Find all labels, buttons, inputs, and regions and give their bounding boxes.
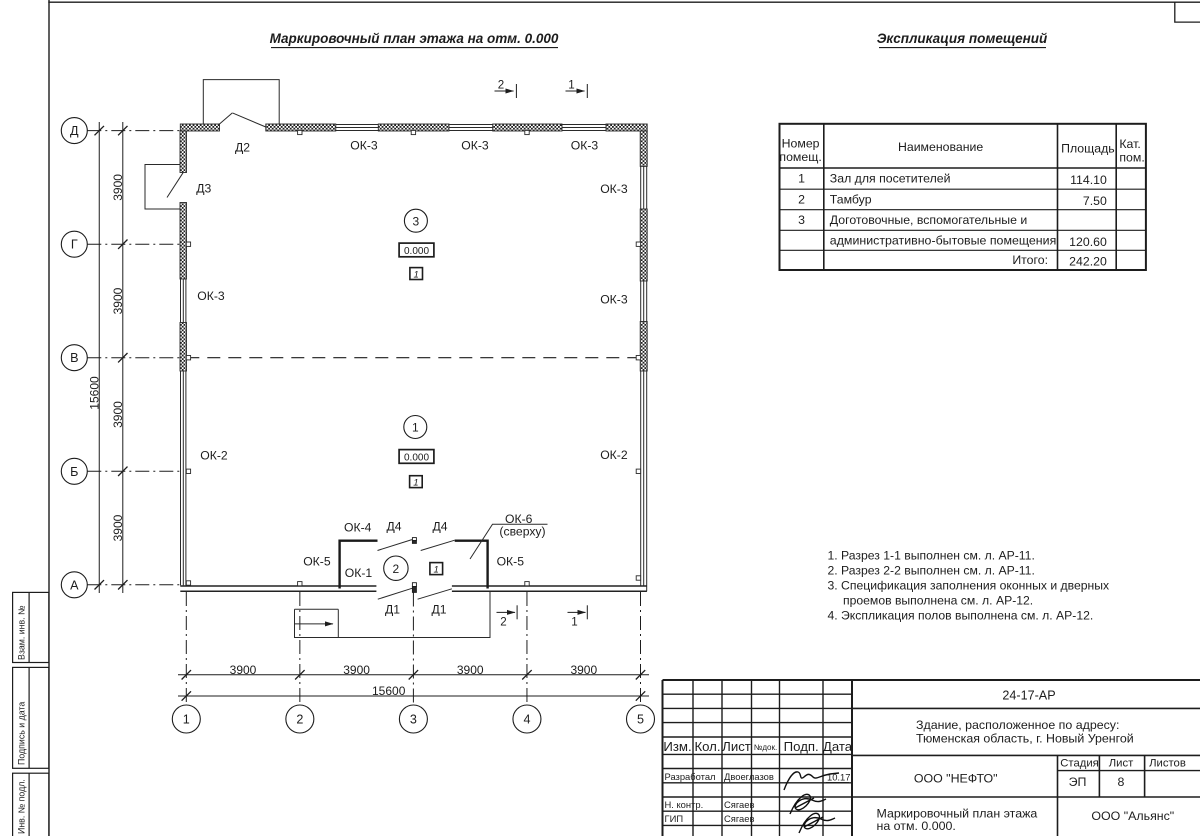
svg-text:Здание, расположенное по адрес: Здание, расположенное по адресу: xyxy=(916,718,1119,732)
svg-text:Тюменская область, г. Новый Ур: Тюменская область, г. Новый Уренгой xyxy=(916,732,1134,746)
svg-text:2: 2 xyxy=(798,192,805,206)
svg-text:А: А xyxy=(70,578,79,592)
svg-text:0.000: 0.000 xyxy=(404,452,429,463)
svg-text:В: В xyxy=(70,351,78,365)
svg-text:Сягаев: Сягаев xyxy=(724,813,754,824)
svg-text:Инв. № подл.: Инв. № подл. xyxy=(17,779,27,834)
svg-text:Зал для посетителей: Зал для посетителей xyxy=(830,172,951,186)
svg-text:Двоеглазов: Двоеглазов xyxy=(724,771,774,782)
svg-text:Кол.: Кол. xyxy=(694,739,720,754)
svg-text:ООО "Альянс": ООО "Альянс" xyxy=(1091,809,1174,823)
svg-text:3900: 3900 xyxy=(111,174,125,201)
svg-text:Маркировочный план этажа на от: Маркировочный план этажа на отм. 0.000 xyxy=(270,31,559,46)
svg-text:ОК-3: ОК-3 xyxy=(600,293,628,307)
svg-text:Кат.: Кат. xyxy=(1119,137,1140,151)
svg-text:ОК-2: ОК-2 xyxy=(600,448,628,462)
svg-text:24-17-АР: 24-17-АР xyxy=(1002,689,1055,703)
svg-text:1: 1 xyxy=(571,616,577,629)
svg-text:Подп.: Подп. xyxy=(784,739,819,754)
svg-text:Д4: Д4 xyxy=(432,520,447,534)
svg-text:2: 2 xyxy=(296,713,303,727)
svg-text:ОК-2: ОК-2 xyxy=(200,449,228,463)
svg-text:3: 3 xyxy=(798,213,805,227)
svg-text:2. Разрез 2-2 выполнен см. л.: 2. Разрез 2-2 выполнен см. л. АР-11. xyxy=(828,564,1035,578)
svg-text:242.20: 242.20 xyxy=(1069,255,1107,269)
svg-text:Взам. инв. №: Взам. инв. № xyxy=(17,606,27,661)
svg-text:Подпись и дата: Подпись и дата xyxy=(17,702,27,765)
svg-text:Стадия: Стадия xyxy=(1060,758,1099,770)
svg-text:7.50: 7.50 xyxy=(1083,194,1107,208)
svg-text:на отм. 0.000.: на отм. 0.000. xyxy=(877,819,956,833)
svg-text:административно-бытовые помеще: административно-бытовые помещения xyxy=(830,234,1057,248)
svg-text:ОК-3: ОК-3 xyxy=(600,182,628,196)
svg-text:1: 1 xyxy=(434,564,439,575)
svg-text:0.000: 0.000 xyxy=(404,246,429,257)
svg-text:1: 1 xyxy=(412,421,419,435)
svg-text:пом.: пом. xyxy=(1119,150,1144,164)
svg-text:5: 5 xyxy=(637,713,644,727)
svg-text:ОК-4: ОК-4 xyxy=(344,521,372,535)
svg-text:помещ.: помещ. xyxy=(779,150,821,164)
svg-text:1. Разрез 1-1 выполнен см. л.: 1. Разрез 1-1 выполнен см. л. АР-11. xyxy=(828,549,1035,563)
svg-text:2: 2 xyxy=(500,616,506,629)
svg-text:Д1: Д1 xyxy=(431,602,446,616)
svg-text:ОК-1: ОК-1 xyxy=(345,566,373,580)
svg-text:3900: 3900 xyxy=(111,401,125,428)
svg-text:8: 8 xyxy=(1118,775,1125,789)
svg-text:3900: 3900 xyxy=(457,663,484,677)
svg-text:1: 1 xyxy=(413,477,418,488)
svg-text:ГИП: ГИП xyxy=(665,813,684,824)
svg-text:Г: Г xyxy=(71,238,78,252)
svg-text:Н. контр.: Н. контр. xyxy=(665,799,704,810)
svg-text:№док.: №док. xyxy=(754,743,777,752)
svg-text:проемов выполнена см. л. АР-12: проемов выполнена см. л. АР-12. xyxy=(843,594,1033,608)
svg-text:Наименование: Наименование xyxy=(898,140,983,154)
svg-text:3: 3 xyxy=(410,713,417,727)
svg-text:2: 2 xyxy=(498,79,504,92)
svg-text:Д3: Д3 xyxy=(196,182,211,196)
svg-text:Д2: Д2 xyxy=(235,141,250,155)
svg-text:Д4: Д4 xyxy=(386,520,401,534)
svg-text:3. Спецификация заполнения око: 3. Спецификация заполнения оконных и две… xyxy=(828,579,1110,593)
svg-text:Д: Д xyxy=(70,124,79,138)
svg-text:ОК-3: ОК-3 xyxy=(461,139,489,153)
svg-text:Площадь: Площадь xyxy=(1061,141,1115,155)
svg-text:3900: 3900 xyxy=(570,663,597,677)
svg-text:1: 1 xyxy=(568,79,574,92)
svg-text:Дата: Дата xyxy=(823,739,853,754)
svg-text:ОК-3: ОК-3 xyxy=(571,139,599,153)
svg-text:Номер: Номер xyxy=(782,136,820,150)
svg-text:3900: 3900 xyxy=(111,514,125,541)
svg-text:4: 4 xyxy=(523,713,530,727)
svg-text:ЭП: ЭП xyxy=(1069,775,1087,789)
svg-text:Б: Б xyxy=(70,465,78,479)
svg-text:ОК-3: ОК-3 xyxy=(350,139,378,153)
svg-text:ОК-5: ОК-5 xyxy=(303,555,331,569)
svg-text:114.10: 114.10 xyxy=(1070,173,1107,187)
svg-text:Сягаев: Сягаев xyxy=(724,799,754,810)
svg-text:1: 1 xyxy=(414,269,419,280)
svg-text:Листов: Листов xyxy=(1149,758,1186,770)
svg-text:ОК-5: ОК-5 xyxy=(497,555,525,569)
svg-text:3900: 3900 xyxy=(111,287,125,314)
svg-text:Лист: Лист xyxy=(722,739,751,754)
svg-text:(сверху): (сверху) xyxy=(499,525,545,539)
svg-text:Разработал: Разработал xyxy=(665,771,716,782)
svg-text:4. Экспликация полов выполнена: 4. Экспликация полов выполнена см. л. АР… xyxy=(828,609,1094,623)
svg-text:15600: 15600 xyxy=(87,376,101,410)
svg-text:ОК-3: ОК-3 xyxy=(197,289,225,303)
svg-text:Итого:: Итого: xyxy=(1012,253,1048,267)
svg-text:1: 1 xyxy=(183,713,190,727)
svg-text:Доготовочные, вспомогательные: Доготовочные, вспомогательные и xyxy=(830,213,1028,227)
svg-text:1: 1 xyxy=(798,172,805,186)
svg-text:120.60: 120.60 xyxy=(1069,235,1107,249)
svg-text:Тамбур: Тамбур xyxy=(830,192,872,206)
svg-text:Д1: Д1 xyxy=(385,602,400,616)
svg-text:Изм.: Изм. xyxy=(663,739,691,754)
svg-text:2: 2 xyxy=(393,562,400,576)
svg-text:15600: 15600 xyxy=(372,684,406,698)
svg-text:3900: 3900 xyxy=(343,663,370,677)
svg-text:Лист: Лист xyxy=(1109,758,1134,770)
svg-text:3: 3 xyxy=(413,214,420,228)
svg-text:ООО "НЕФТО": ООО "НЕФТО" xyxy=(914,772,998,786)
svg-text:Экспликация помещений: Экспликация помещений xyxy=(877,31,1048,46)
svg-text:3900: 3900 xyxy=(230,663,257,677)
